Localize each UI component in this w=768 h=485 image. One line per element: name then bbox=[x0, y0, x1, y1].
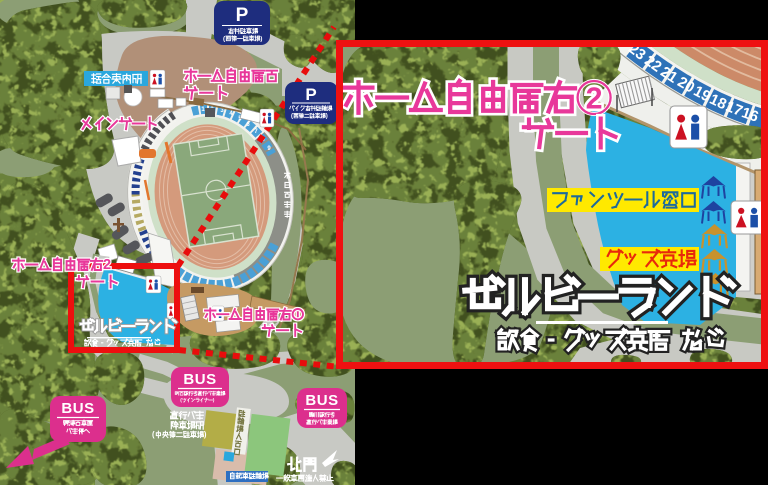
svg-text:2: 2 bbox=[103, 257, 111, 273]
svg-text:(: ( bbox=[152, 430, 155, 439]
svg-text:): ) bbox=[326, 114, 328, 120]
svg-text:BUS: BUS bbox=[305, 392, 338, 409]
svg-text:P: P bbox=[305, 85, 316, 104]
svg-text:BUS: BUS bbox=[183, 371, 216, 388]
svg-text:BUS: BUS bbox=[61, 400, 94, 417]
svg-text:): ) bbox=[260, 36, 262, 43]
svg-text:2: 2 bbox=[586, 81, 603, 115]
svg-text:P: P bbox=[236, 5, 249, 26]
svg-text:): ) bbox=[204, 430, 207, 439]
svg-text:(: ( bbox=[291, 114, 293, 120]
